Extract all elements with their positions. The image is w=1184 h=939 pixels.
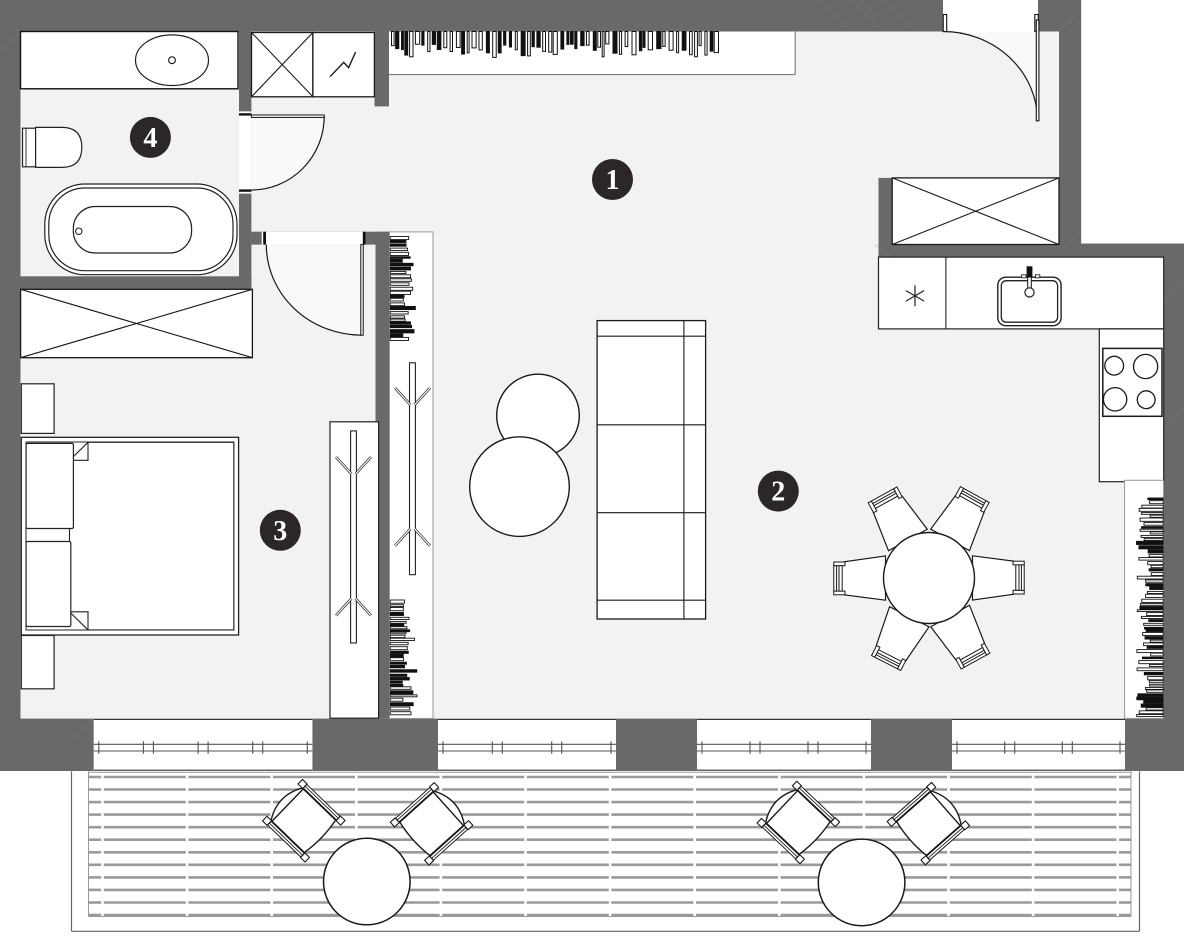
svg-text:2: 2: [771, 477, 785, 508]
svg-text:4: 4: [143, 123, 157, 154]
svg-text:1: 1: [606, 165, 620, 196]
svg-text:3: 3: [273, 516, 287, 547]
